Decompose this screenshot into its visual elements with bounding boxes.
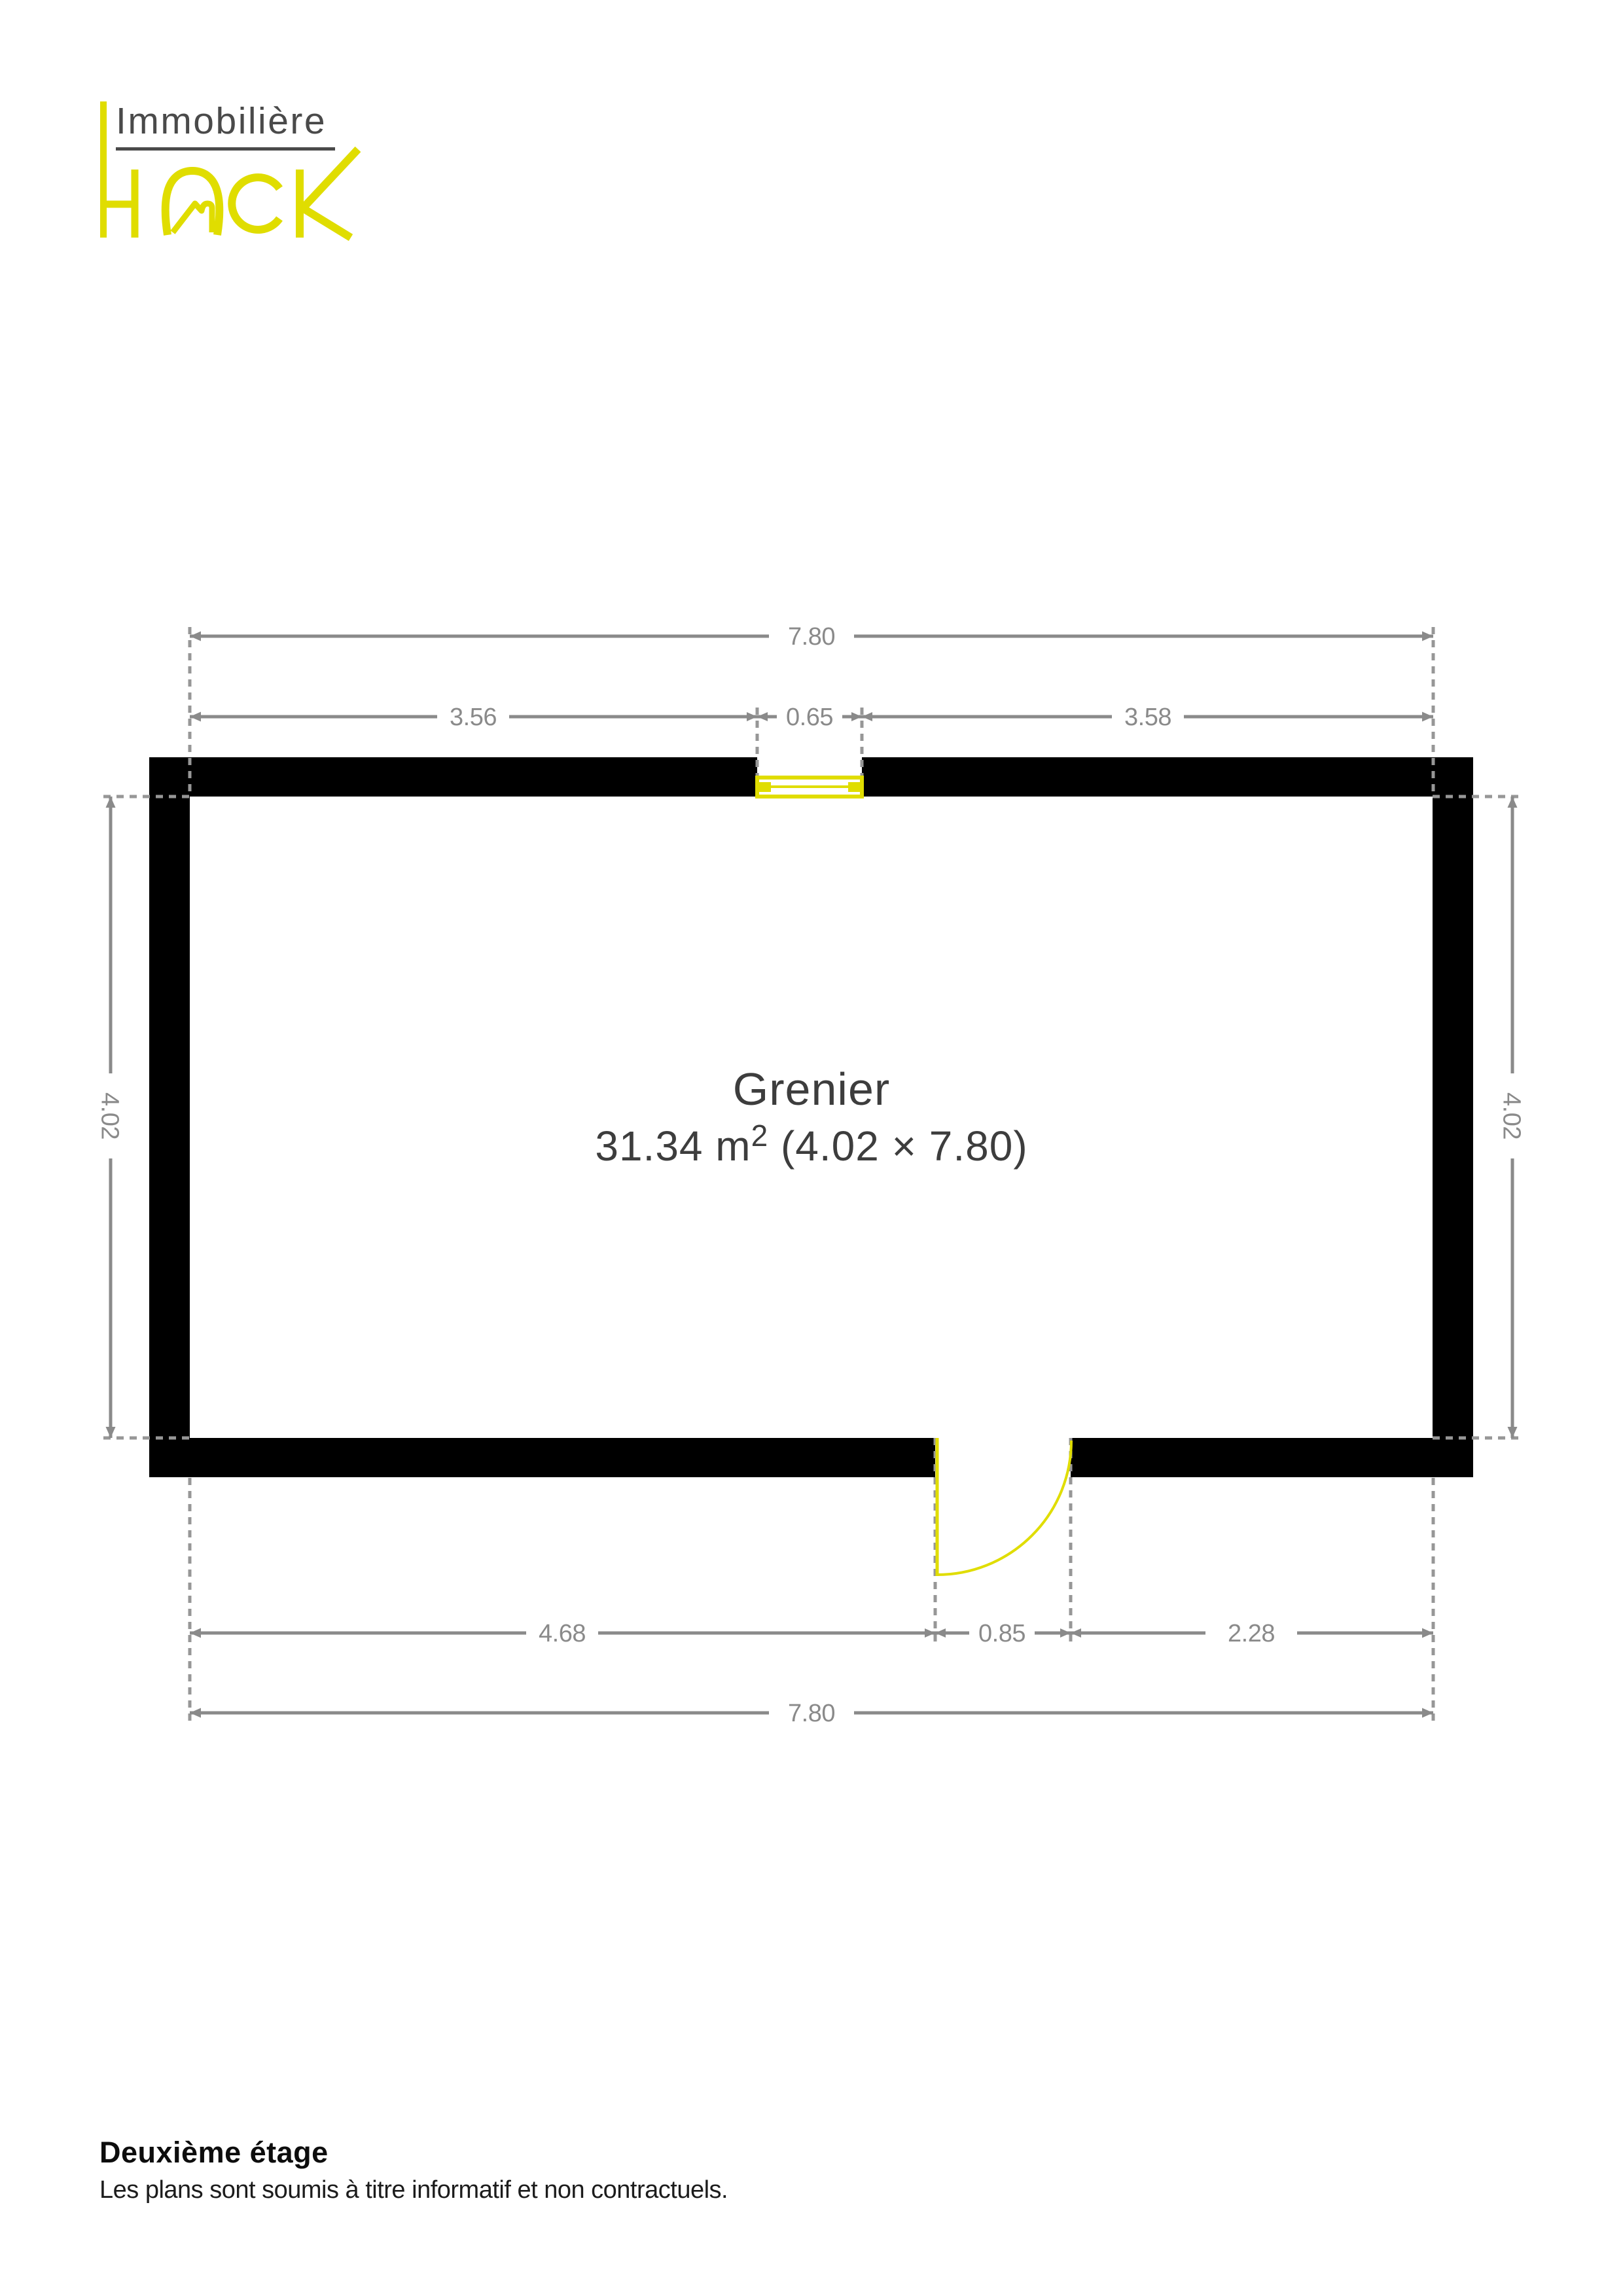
window-handle-right	[848, 782, 861, 792]
footer-title: Deuxième étage	[99, 2138, 728, 2168]
room-name: Grenier	[733, 1064, 890, 1115]
arrow-right-icon	[1422, 1628, 1433, 1638]
dim-left-label: 4.02	[96, 1092, 124, 1139]
room-label: Grenier 31.34 m2 (4.02 × 7.80)	[595, 1064, 1027, 1170]
walls	[149, 757, 1473, 1477]
arrow-up-icon	[1508, 797, 1518, 808]
arrow-right-icon	[1422, 632, 1433, 641]
floor-plan: 7.80 3.56 0.65 3.58 4.02 4.02	[0, 0, 1623, 2296]
footer-disclaimer: Les plans sont soumis à titre informatif…	[99, 2176, 728, 2204]
arrow-right-icon	[1422, 1708, 1433, 1718]
dim-top-window-label: 0.65	[786, 704, 833, 731]
room-area-sup: 2	[751, 1119, 769, 1153]
arrow-left-icon	[190, 632, 201, 641]
dim-top-total: 7.80	[190, 623, 1433, 651]
room-area: 31.34 m2 (4.02 × 7.80)	[595, 1119, 1027, 1170]
dim-top-right-label: 3.58	[1124, 704, 1171, 731]
wall-bottom-right	[1071, 1438, 1473, 1477]
dim-bottom-door-label: 0.85	[978, 1620, 1026, 1647]
wall-top-right	[862, 757, 1473, 797]
dim-top-left-label: 3.56	[450, 704, 497, 731]
window-handle-left	[758, 782, 771, 792]
window-symbol	[757, 778, 862, 797]
dim-bottom-total-label: 7.80	[788, 1700, 835, 1727]
floor-plan-page: { "logo": { "line1": "Immobilière", "wor…	[0, 0, 1623, 2296]
room-area-value: 31.34 m	[595, 1122, 751, 1170]
dim-top-total-label: 7.80	[788, 623, 835, 651]
arrow-left-icon	[190, 1628, 201, 1638]
dim-bottom-total: 7.80	[190, 1700, 1433, 1727]
arrow-left-icon	[190, 712, 201, 722]
dim-right-side: 4.02	[1498, 797, 1525, 1438]
arrow-up-icon	[106, 797, 116, 808]
dim-left-side: 4.02	[96, 797, 124, 1438]
door-symbol	[937, 1438, 1071, 1576]
arrow-left-icon	[190, 1708, 201, 1718]
dim-bottom-segments: 4.68 0.85 2.28	[190, 1620, 1433, 1647]
wall-left	[149, 757, 190, 1477]
dim-bottom-left-label: 4.68	[539, 1620, 586, 1647]
arrow-down-icon	[1508, 1427, 1518, 1438]
wall-top-left	[149, 757, 757, 797]
dim-right-label: 4.02	[1498, 1092, 1525, 1139]
footer: Deuxième étage Les plans sont soumis à t…	[99, 2138, 728, 2204]
arrow-right-icon	[1422, 712, 1433, 722]
wall-bottom-left	[149, 1438, 935, 1477]
door-swing-arc	[937, 1441, 1071, 1575]
room-area-dims: (4.02 × 7.80)	[768, 1122, 1027, 1170]
arrow-down-icon	[106, 1427, 116, 1438]
wall-right	[1433, 757, 1473, 1477]
dim-bottom-right-label: 2.28	[1228, 1620, 1275, 1647]
dim-top-segments: 3.56 0.65 3.58	[190, 704, 1433, 731]
